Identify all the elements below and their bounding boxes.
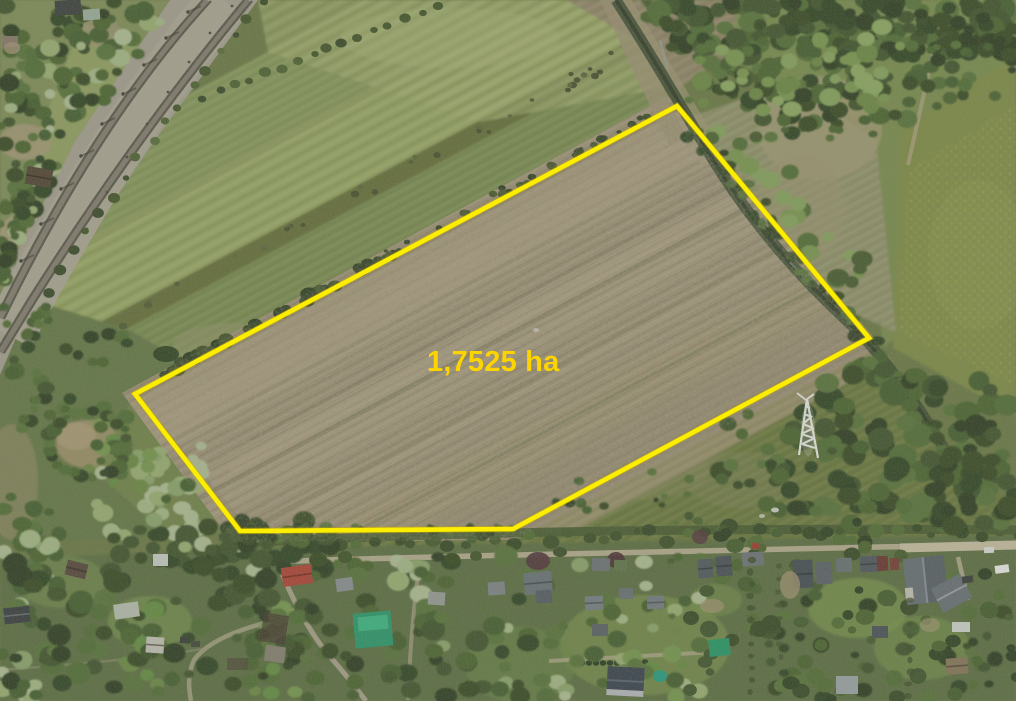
svg-text:1,7525 ha: 1,7525 ha bbox=[427, 346, 560, 378]
